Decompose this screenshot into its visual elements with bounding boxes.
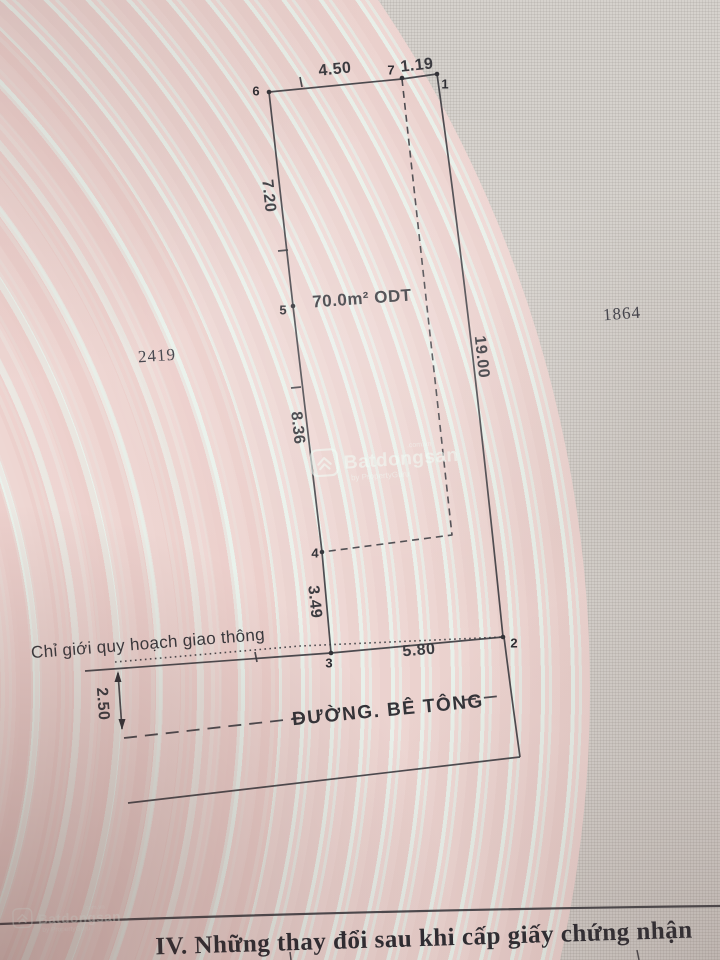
dimension-arrow-down <box>119 719 126 730</box>
tick-top-edge <box>300 77 302 87</box>
vertex-label-7: 7 <box>387 63 394 78</box>
adjacent-parcel-right: 1864 <box>602 303 641 326</box>
vertex-point-6 <box>267 90 272 95</box>
dimension-top-right: 1.19 <box>400 55 435 76</box>
vertex-point-2 <box>501 635 506 640</box>
vertex-point-4 <box>320 550 325 555</box>
vertex-label-3: 3 <box>325 656 332 671</box>
dimension-left-upper: 7.20 <box>257 179 278 214</box>
dimension-arrow-up <box>115 671 122 682</box>
tick-dotted-line <box>255 652 257 662</box>
vertex-point-1 <box>435 72 440 77</box>
vertex-label-2: 2 <box>510 636 517 651</box>
vertex-label-1: 1 <box>441 77 448 92</box>
dimension-top-left: 4.50 <box>318 59 353 80</box>
tick-left-middle-edge <box>291 387 301 388</box>
planning-dashed-line <box>322 79 452 552</box>
parcel-plan-drawing <box>0 0 720 960</box>
certificate-photo: 6 7 1 2 3 4 5 4.50 1.19 7.20 8.36 3.49 5… <box>0 0 720 960</box>
vertex-label-4: 4 <box>311 546 318 561</box>
road-centerline-left <box>124 717 311 738</box>
parcel-boundary <box>269 74 503 653</box>
road-right-edge <box>504 637 520 757</box>
dimension-front: 5.80 <box>402 641 437 662</box>
table-line-right <box>637 950 639 960</box>
vertex-label-5: 5 <box>279 303 286 318</box>
vertex-point-5 <box>291 304 296 309</box>
dimension-left-middle: 8.36 <box>286 411 307 446</box>
adjacent-parcel-left: 2419 <box>137 345 176 368</box>
road-far-edge <box>128 757 520 803</box>
tick-left-upper-edge <box>278 250 288 251</box>
dimension-left-lower: 3.49 <box>303 585 324 620</box>
dimension-road-width: 2.50 <box>92 687 112 721</box>
vertex-label-6: 6 <box>252 84 259 99</box>
